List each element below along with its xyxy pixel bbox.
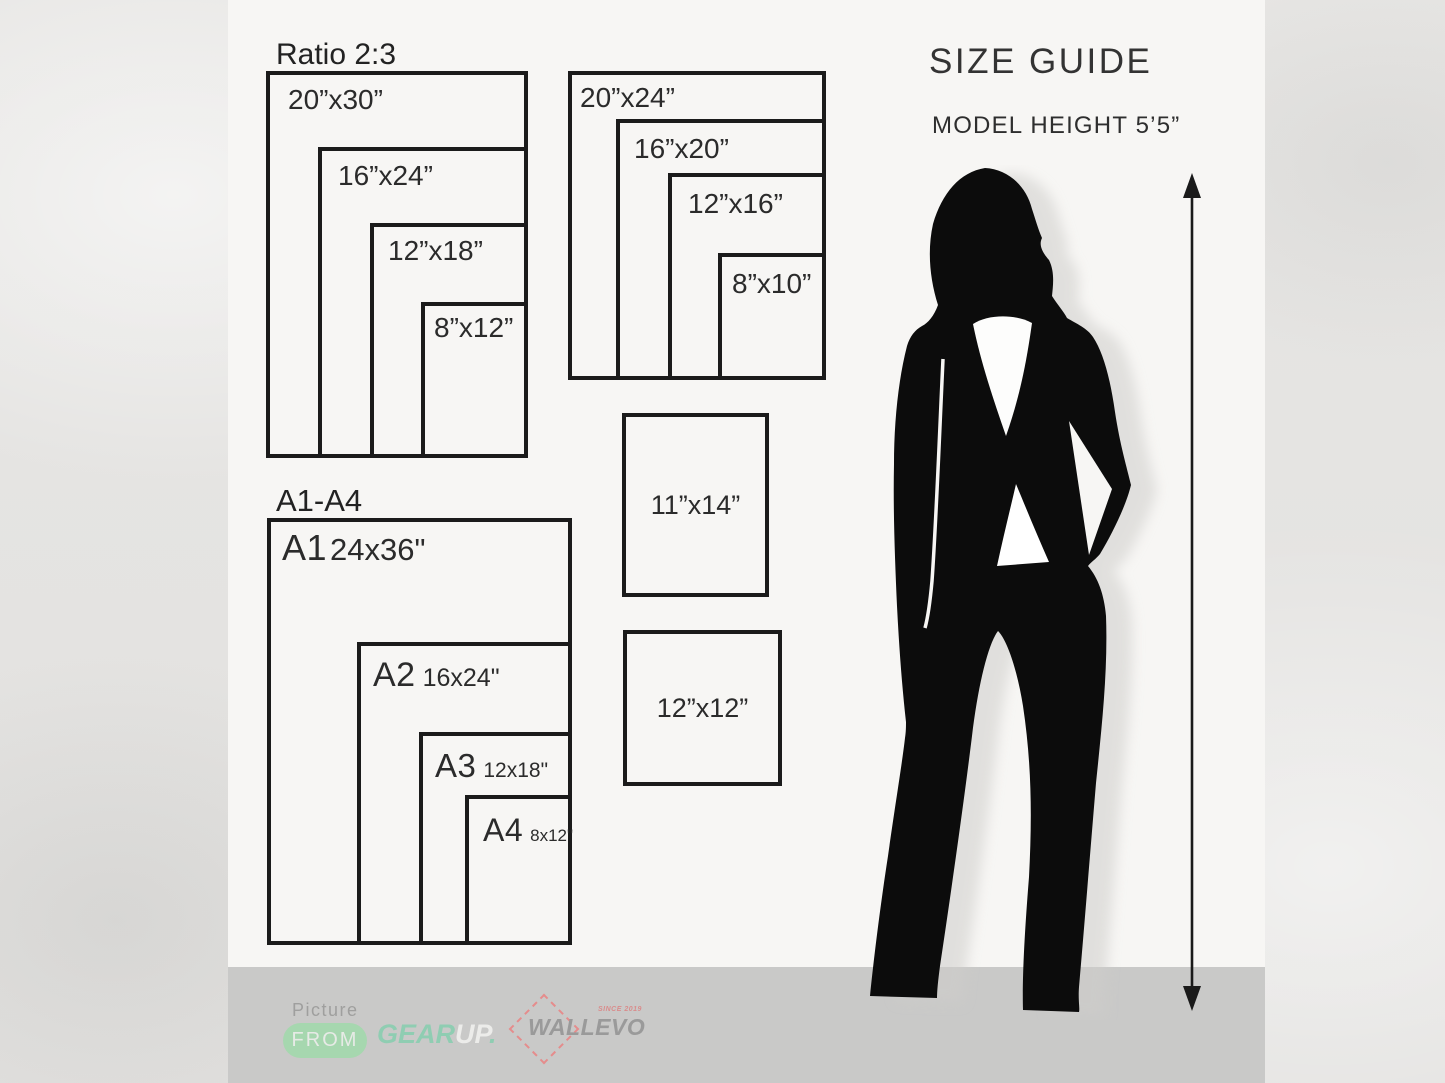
- gearup-logo: GEARUP.: [377, 1019, 497, 1050]
- a2-name: A2: [373, 656, 416, 695]
- size-rectangle-11x14: 11”x14”: [622, 413, 769, 597]
- a1-size: 24x36": [330, 532, 425, 568]
- wallevo-since: SINCE 2019: [598, 1006, 642, 1013]
- page-title: SIZE GUIDE: [929, 42, 1152, 82]
- gearup-logo-up: UP: [455, 1019, 489, 1049]
- size-label-12x16: 12”x16”: [688, 188, 783, 220]
- a4-size: 8x12": [530, 826, 573, 846]
- a4-label-row: A4 8x12": [483, 812, 573, 849]
- a1-name: A1: [282, 527, 327, 569]
- size-label-8x10: 8”x10”: [732, 268, 811, 300]
- a1-label-row: A1 24x36": [282, 527, 426, 569]
- height-arrow: [1170, 168, 1214, 1016]
- a4-name: A4: [483, 812, 523, 849]
- a2-label-row: A2 16x24": [373, 656, 500, 695]
- size-label-16x20: 16”x20”: [634, 133, 729, 165]
- size-label-12x18: 12”x18”: [388, 235, 483, 267]
- ratio-group-title: Ratio 2:3: [276, 38, 396, 72]
- size-label-12x12: 12”x12”: [657, 693, 749, 724]
- size-label-20x30: 20”x30”: [288, 84, 383, 116]
- a3-size: 12x18": [483, 759, 548, 783]
- size-label-20x24: 20”x24”: [580, 82, 675, 114]
- size-rectangle-12x12: 12”x12”: [623, 630, 782, 786]
- wallevo-logo: SINCE 2019 WALLEVO: [505, 985, 655, 1075]
- gearup-logo-dot: .: [489, 1019, 497, 1049]
- size-label-16x24: 16”x24”: [338, 160, 433, 192]
- from-badge-text: FROM: [292, 1029, 359, 1052]
- wallevo-name: WALLEVO: [528, 1014, 645, 1041]
- picture-label: Picture: [292, 1000, 359, 1021]
- gearup-logo-gear: GEAR: [377, 1019, 455, 1049]
- a3-name: A3: [435, 747, 476, 785]
- size-label-8x12: 8”x12”: [434, 312, 513, 344]
- a2-size: 16x24": [423, 664, 500, 693]
- a-series-title: A1-A4: [276, 483, 362, 519]
- size-label-11x14: 11”x14”: [651, 490, 741, 521]
- size-guide-poster: Ratio 2:3 20”x30” 16”x24” 12”x18” 8”x12”…: [0, 0, 1445, 1083]
- a3-label-row: A3 12x18": [435, 747, 548, 785]
- from-badge: FROM: [283, 1023, 367, 1058]
- arrowhead-down-icon: [1183, 986, 1201, 1011]
- arrowhead-up-icon: [1183, 173, 1201, 198]
- woman-silhouette: [860, 165, 1170, 1020]
- model-height-label: MODEL HEIGHT 5’5”: [932, 112, 1180, 140]
